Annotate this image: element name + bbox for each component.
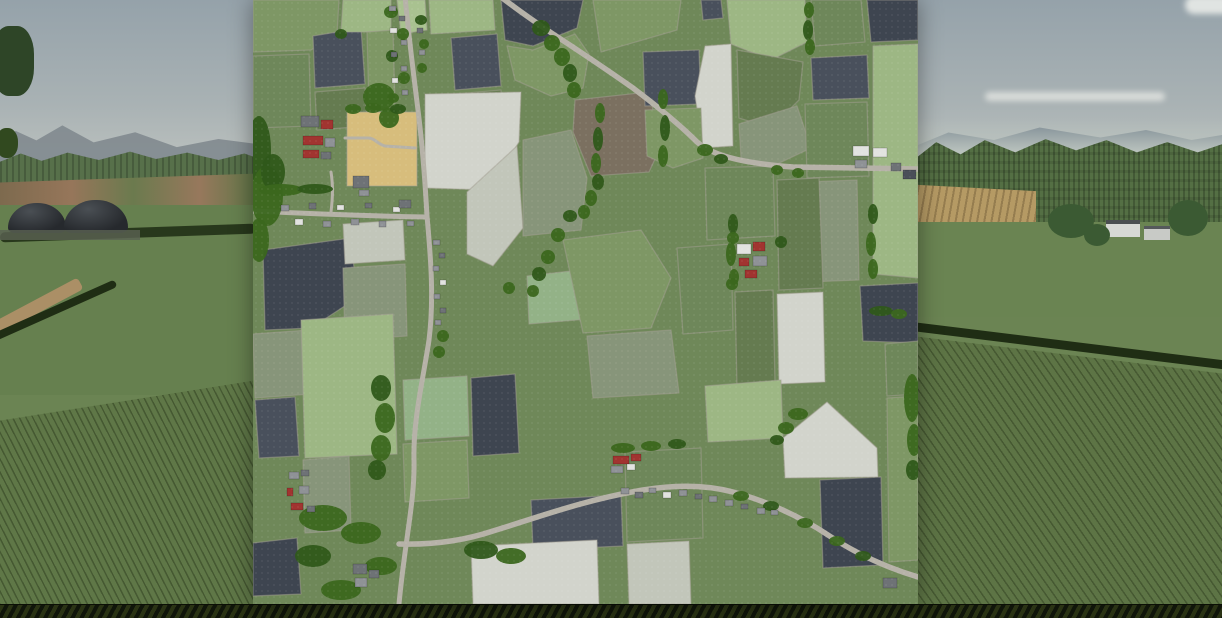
map-tree <box>390 104 406 114</box>
map-building <box>399 16 405 21</box>
map-field <box>643 50 701 106</box>
tree-silhouette <box>1084 224 1110 246</box>
map-field <box>873 44 918 278</box>
map-building <box>649 488 656 493</box>
map-building <box>855 160 867 168</box>
map-tree <box>335 29 347 39</box>
map-road <box>331 172 333 212</box>
map-field <box>705 380 783 442</box>
map-field <box>627 541 691 604</box>
map-tree <box>532 267 546 281</box>
map-tree <box>341 522 381 544</box>
map-tree <box>868 259 878 279</box>
map-building <box>301 470 309 476</box>
map-tree <box>891 309 907 319</box>
map-building <box>321 120 333 129</box>
map-building <box>309 203 316 209</box>
map-tree <box>417 63 427 73</box>
map-tree <box>368 460 386 480</box>
map-building <box>891 163 901 171</box>
map-field <box>587 330 679 398</box>
map-tree <box>375 403 395 433</box>
map-building <box>289 472 299 479</box>
biogas-pad <box>0 230 140 240</box>
map-tree <box>496 548 526 564</box>
crop-field-foreground-left <box>0 380 258 606</box>
tree-silhouette <box>1168 200 1208 236</box>
cloud-streak <box>985 92 1165 101</box>
map-building <box>433 240 440 245</box>
map-tree <box>829 536 845 546</box>
map-tree <box>397 28 409 40</box>
map-building <box>369 570 379 578</box>
map-building <box>402 90 408 95</box>
map-building <box>873 148 887 157</box>
map-tree <box>563 210 577 222</box>
map-building <box>771 510 778 515</box>
map-tree <box>578 205 590 219</box>
map-building <box>401 66 407 71</box>
map-tree <box>295 545 331 567</box>
tree-silhouette <box>0 128 18 158</box>
map-field <box>811 0 865 46</box>
map-tree <box>763 501 779 511</box>
map-building <box>287 488 293 496</box>
map-tree <box>611 443 635 453</box>
map-building <box>631 454 641 461</box>
map-building <box>365 203 372 208</box>
map-building <box>663 492 671 498</box>
map-tree <box>259 184 303 196</box>
map-tree <box>595 103 605 123</box>
map-tree <box>804 2 814 18</box>
cloud <box>1185 0 1222 14</box>
map-tree <box>728 214 738 234</box>
map-tree <box>433 346 445 358</box>
map-tree <box>641 441 661 451</box>
map-building <box>359 190 369 196</box>
map-tree <box>544 35 560 51</box>
map-tree <box>387 93 399 103</box>
farm-shed <box>1106 220 1140 237</box>
map-tree <box>714 154 728 164</box>
map-building <box>389 6 396 11</box>
map-building <box>303 150 319 158</box>
map-building <box>745 270 757 278</box>
map-building <box>355 578 367 587</box>
map-tree <box>591 153 601 173</box>
map-tree <box>567 82 581 98</box>
map-building <box>291 503 303 510</box>
map-building <box>392 78 398 83</box>
map-field <box>255 397 299 458</box>
map-building <box>725 500 733 506</box>
map-tree <box>299 505 347 531</box>
map-tree <box>563 64 577 82</box>
map-tree <box>726 242 736 266</box>
map-building <box>399 200 411 208</box>
map-building <box>419 50 425 55</box>
map-building <box>757 508 765 514</box>
map-field <box>705 166 775 240</box>
map-tree <box>805 39 815 55</box>
map-building <box>679 490 687 496</box>
map-building <box>753 256 767 266</box>
map-tree <box>775 236 787 248</box>
map-building <box>281 205 289 211</box>
map-field <box>777 178 823 290</box>
map-field <box>777 292 825 384</box>
map-tree <box>855 551 871 561</box>
map-tree <box>415 15 427 25</box>
map-tree <box>868 204 878 224</box>
map-tree <box>345 104 361 114</box>
map-building <box>391 52 397 57</box>
map-tree <box>727 232 739 244</box>
map-building <box>737 244 751 254</box>
map-field <box>820 477 883 568</box>
map-building <box>434 294 440 299</box>
map-building <box>753 242 765 251</box>
bottom-crop-strip <box>0 604 1222 618</box>
map-building <box>301 116 319 127</box>
map-tree <box>527 285 539 297</box>
map-building <box>323 221 331 227</box>
map-building <box>883 578 897 588</box>
map-tree <box>585 190 597 206</box>
map-tree <box>668 439 686 449</box>
map-tree <box>541 250 555 264</box>
map-building <box>353 564 367 574</box>
farm-shed <box>1144 226 1170 240</box>
farm-map-svg <box>253 0 918 604</box>
map-building <box>440 280 446 285</box>
map-building <box>695 494 702 499</box>
map-field <box>677 244 733 334</box>
map-field <box>471 374 519 456</box>
map-tree <box>398 72 410 84</box>
map-building <box>353 176 369 188</box>
map-tree <box>697 144 713 156</box>
map-building <box>325 138 335 147</box>
map-building <box>611 466 623 473</box>
map-building <box>621 488 629 494</box>
map-tree <box>792 168 804 178</box>
map-tree <box>593 127 603 151</box>
map-building <box>739 258 749 266</box>
map-tree <box>419 39 429 49</box>
map-tree <box>788 408 808 420</box>
map-tree <box>866 232 876 256</box>
map-tree <box>371 375 391 401</box>
map-tree <box>592 174 604 190</box>
map-building <box>303 136 323 145</box>
map-building <box>635 492 643 498</box>
map-building <box>440 308 446 313</box>
map-building <box>299 486 309 494</box>
map-tree <box>778 422 794 434</box>
farmstead-right <box>1048 198 1208 258</box>
map-tree <box>660 115 670 141</box>
map-tree <box>437 330 449 342</box>
map-tree <box>297 184 333 194</box>
farm-map-overlay[interactable] <box>253 0 918 604</box>
map-field <box>253 538 301 596</box>
map-building <box>401 40 407 45</box>
map-building <box>417 28 423 33</box>
map-building <box>295 219 303 225</box>
map-tree <box>464 541 498 559</box>
map-building <box>741 504 748 509</box>
map-building <box>433 266 439 271</box>
map-building <box>709 496 717 502</box>
tree-silhouette <box>0 26 34 96</box>
map-tree <box>554 48 570 66</box>
map-building <box>613 456 629 464</box>
map-tree <box>803 20 813 40</box>
map-field <box>341 0 391 32</box>
map-field <box>867 0 918 42</box>
map-building <box>379 221 386 227</box>
map-tree <box>532 20 550 36</box>
map-tree <box>365 103 381 113</box>
map-field <box>811 55 869 100</box>
map-field <box>451 34 501 90</box>
map-tree <box>503 282 515 294</box>
map-tree <box>797 518 813 528</box>
map-building <box>627 464 635 470</box>
map-building <box>321 152 331 159</box>
map-tree <box>371 435 391 461</box>
map-tree <box>551 228 565 242</box>
map-building <box>853 146 869 156</box>
map-building <box>351 219 359 225</box>
map-field <box>701 0 723 20</box>
map-tree <box>869 306 893 316</box>
map-tree <box>771 165 783 175</box>
map-building <box>439 253 445 258</box>
map-tree <box>658 145 668 167</box>
map-building <box>307 506 315 512</box>
map-building <box>903 170 916 179</box>
map-field <box>343 220 405 264</box>
map-tree <box>733 491 749 501</box>
game-screenshot: { "scene": { "description": "Farming-sim… <box>0 0 1222 617</box>
map-tree <box>726 278 738 290</box>
map-building <box>407 221 414 226</box>
map-tree <box>658 89 668 109</box>
map-tree <box>770 435 784 445</box>
map-building <box>435 320 441 325</box>
map-field <box>735 290 775 388</box>
map-field <box>429 0 495 34</box>
map-building <box>390 28 397 33</box>
map-building <box>337 205 344 210</box>
